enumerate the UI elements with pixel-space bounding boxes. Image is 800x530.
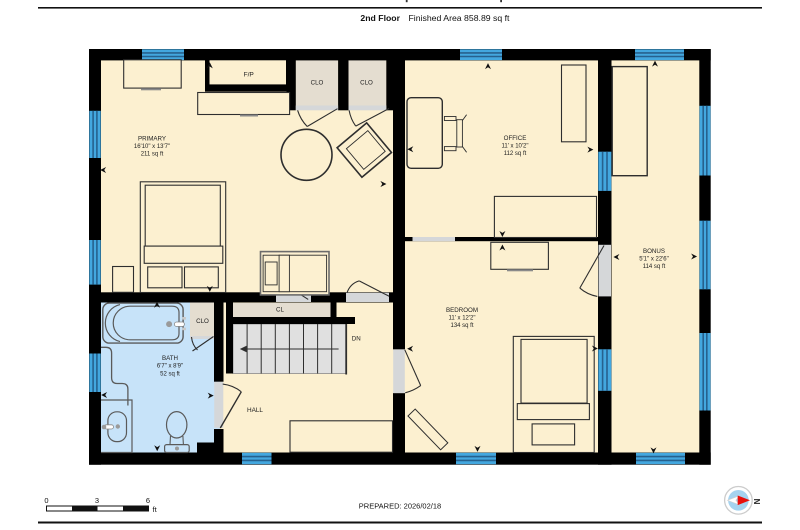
svg-text:52 sq ft: 52 sq ft [160,371,180,377]
svg-text:112 sq ft: 112 sq ft [504,151,527,157]
svg-text:211 sq ft: 211 sq ft [141,152,164,158]
svg-text:6: 6 [146,496,150,505]
svg-text:N: N [752,499,761,505]
svg-text:11' x 12'2": 11' x 12'2" [449,315,476,321]
svg-text:BATH: BATH [162,355,178,362]
svg-text:CLO: CLO [311,80,324,87]
svg-text:16'10" x 13'7": 16'10" x 13'7" [134,144,170,150]
svg-text:BEDROOM: BEDROOM [446,307,478,314]
svg-text:6'7" x 8'9": 6'7" x 8'9" [157,364,183,370]
svg-text:3: 3 [95,496,99,505]
svg-text:2nd Floor: 2nd Floor [360,13,400,23]
svg-text:5'1" x 22'6": 5'1" x 22'6" [639,257,669,263]
svg-text:PRIMARY: PRIMARY [138,136,166,143]
svg-text:F/P: F/P [244,71,255,78]
svg-text:CLO: CLO [196,318,209,325]
svg-text:BONUS: BONUS [643,248,665,255]
svg-text:ft: ft [153,505,158,514]
svg-text:134 sq ft: 134 sq ft [450,323,473,329]
svg-text:0: 0 [44,496,48,505]
svg-text:HALL: HALL [247,407,263,414]
svg-text:Finished Area 858.89 sq ft: Finished Area 858.89 sq ft [409,13,511,23]
svg-text:CL: CL [276,307,284,314]
svg-text:114 sq ft: 114 sq ft [643,264,666,270]
svg-text:CLO: CLO [360,80,373,87]
svg-text:PREPARED: 2026/02/18: PREPARED: 2026/02/18 [359,502,441,511]
svg-text:DN: DN [352,335,361,342]
svg-text:11' x 10'2": 11' x 10'2" [502,143,529,149]
svg-text:OFFICE: OFFICE [504,135,527,142]
